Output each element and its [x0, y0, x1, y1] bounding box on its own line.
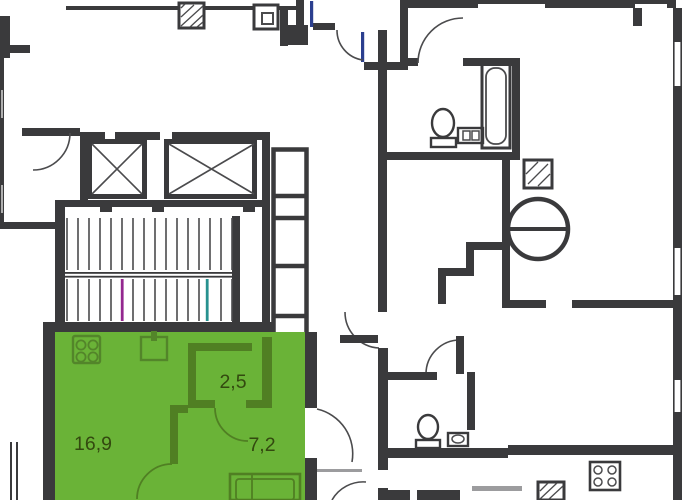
stair-marker-teal: [206, 279, 209, 321]
door-leaf-accent: [310, 1, 313, 27]
area-label-room-3: 7,2: [248, 434, 275, 456]
utility-shaft-icon: [273, 150, 307, 344]
floor-plan: 16,9 2,5 7,2: [0, 0, 687, 500]
selected-unit[interactable]: 16,9 2,5 7,2: [55, 331, 305, 500]
door-leaf-accent: [361, 32, 364, 62]
stair-marker-magenta: [121, 279, 124, 321]
floor-plan-canvas: 16,9 2,5 7,2: [0, 0, 687, 500]
area-label-room-1: 16,9: [74, 433, 112, 455]
area-label-room-2: 2,5: [219, 371, 246, 393]
